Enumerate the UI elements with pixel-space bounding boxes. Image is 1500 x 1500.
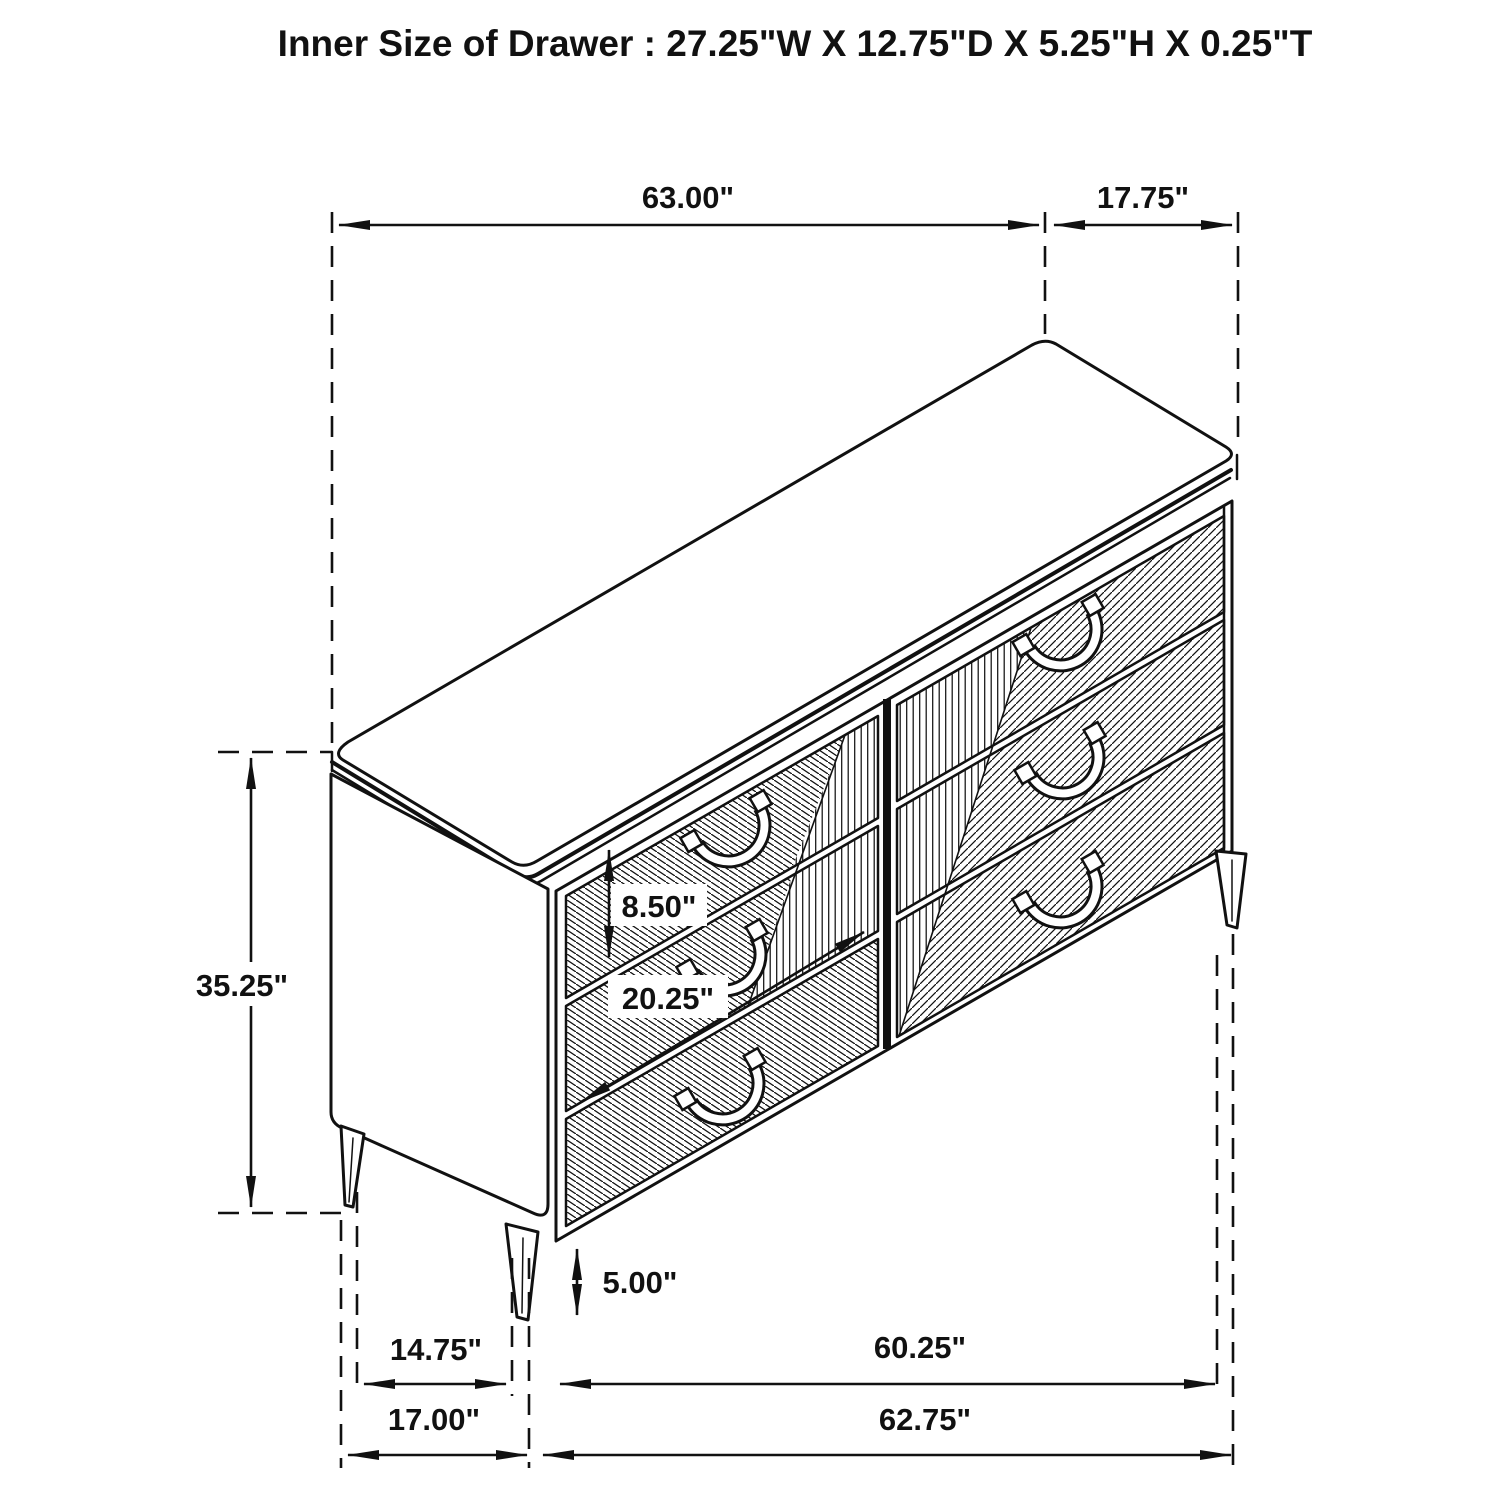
leg-front-center-inner-line bbox=[522, 1238, 523, 1313]
leg-front-right bbox=[1216, 851, 1246, 928]
label-drawer-row-span: 20.25" bbox=[622, 981, 714, 1016]
label-leg-height: 5.00" bbox=[602, 1265, 677, 1300]
label-top-depth: 17.75" bbox=[1097, 180, 1189, 215]
label-leg-span: 60.25" bbox=[874, 1330, 966, 1365]
label-base-width: 62.75" bbox=[879, 1402, 971, 1437]
dimension-diagram: Inner Size of Drawer : 27.25"W X 12.75"D… bbox=[0, 0, 1500, 1500]
dresser-diagram-svg: Inner Size of Drawer : 27.25"W X 12.75"D… bbox=[0, 0, 1500, 1500]
label-overall-height: 35.25" bbox=[196, 968, 288, 1003]
dresser-figure bbox=[331, 341, 1246, 1320]
label-left-section-width: 17.00" bbox=[388, 1402, 480, 1437]
label-top-width: 63.00" bbox=[642, 180, 734, 215]
label-left-leg-inset: 14.75" bbox=[390, 1332, 482, 1367]
label-drawer-front-height: 8.50" bbox=[621, 889, 696, 924]
page-title: Inner Size of Drawer : 27.25"W X 12.75"D… bbox=[278, 23, 1313, 64]
